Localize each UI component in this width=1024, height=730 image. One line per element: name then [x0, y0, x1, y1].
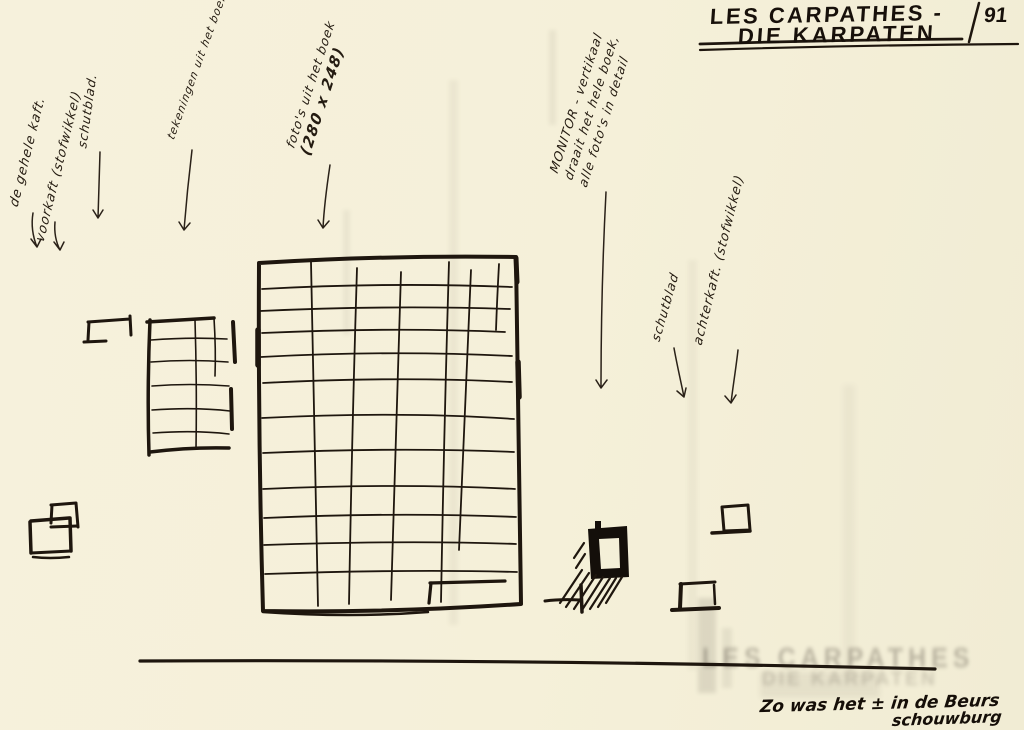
- sketch-strokes-layer: [0, 0, 1024, 730]
- annotation-arrows: [31, 150, 738, 403]
- page-number: 91: [983, 4, 1009, 28]
- footer-note-line2: schouwburg: [891, 707, 1003, 730]
- small-square-sketch: [712, 505, 750, 533]
- large-grid-sketch: [258, 257, 582, 615]
- overlapping-rects-sketch: [30, 503, 78, 558]
- open-bracket-rect: [84, 316, 131, 342]
- bracket-rect-sketch: [672, 582, 719, 610]
- page-number-slash: [969, 3, 979, 42]
- small-grid-sketch: [147, 318, 235, 455]
- monitor-sketch: [560, 521, 629, 610]
- page-title-line2: DIE KARPATEN: [737, 20, 937, 49]
- baseline-rule: [140, 661, 935, 669]
- scanned-sketch-page: LES CARPATHES DIE KARPATEN: [0, 0, 1024, 730]
